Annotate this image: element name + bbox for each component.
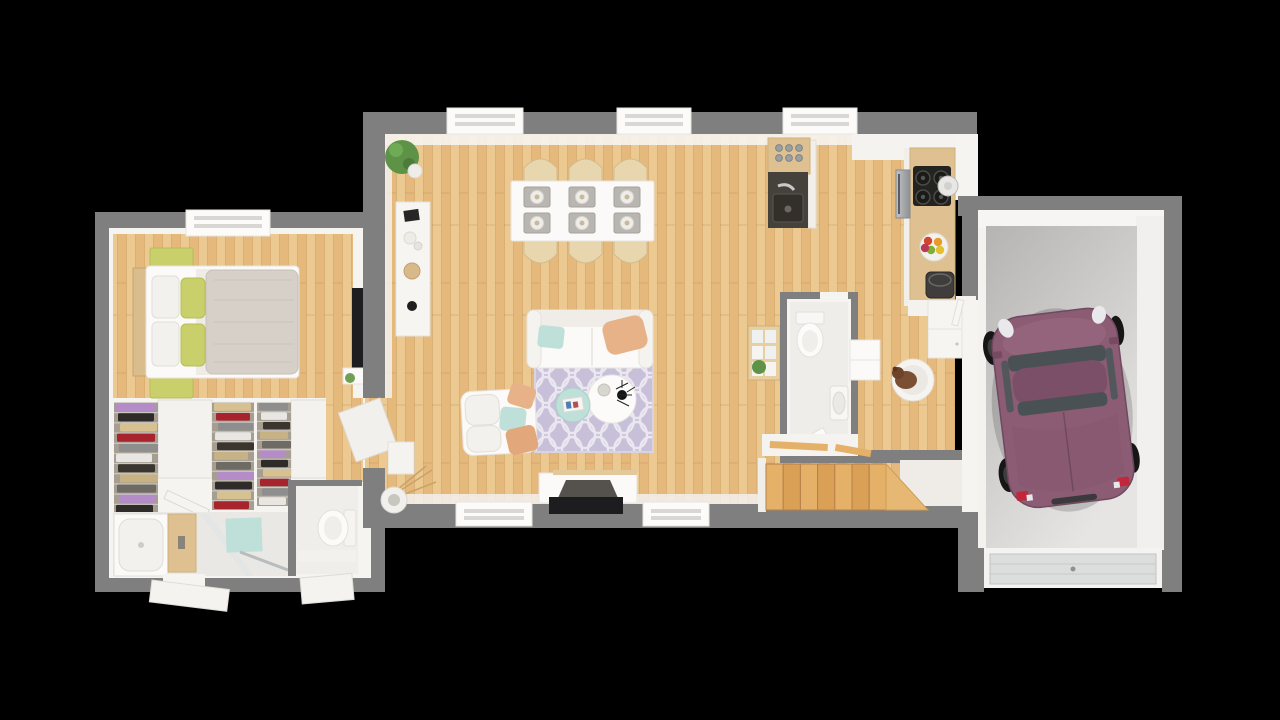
- food: [535, 221, 540, 226]
- folded-clothes: [263, 469, 291, 476]
- half-wall-stub: [388, 442, 414, 474]
- window-slit: [455, 114, 515, 118]
- folded-clothes: [259, 498, 286, 505]
- garage: [958, 196, 1182, 592]
- wc-toilet: [796, 312, 824, 357]
- coffee-table: [588, 375, 636, 423]
- living-window: [447, 108, 523, 134]
- wardrobe-shelf-line: [114, 483, 158, 484]
- folded-clothes: [262, 488, 288, 495]
- shelf-plant: [752, 360, 766, 374]
- living-window: [643, 502, 709, 526]
- food: [535, 195, 540, 200]
- stair-tread: [800, 464, 817, 510]
- fruit: [934, 238, 942, 246]
- glass-cup: [776, 155, 783, 162]
- folded-clothes: [261, 412, 287, 419]
- fruit: [921, 244, 929, 252]
- vanity-handle: [178, 536, 185, 549]
- folded-clothes: [259, 403, 288, 410]
- garage-door-handle: [1071, 567, 1076, 572]
- food: [580, 221, 585, 226]
- left-wall-trim: [385, 145, 392, 398]
- wardrobe-shelf-line: [114, 463, 158, 464]
- wc-small: [288, 480, 362, 576]
- wardrobe-shelf-line: [257, 430, 291, 431]
- bed-headboard: [133, 268, 147, 376]
- wardrobe-shelf-line: [114, 412, 158, 413]
- living-left-wall-upper: [363, 112, 385, 398]
- stair-tread: [766, 464, 783, 510]
- wardrobe-shelf-line: [212, 431, 254, 432]
- window-slit: [464, 509, 524, 513]
- wc-small-toilet: [318, 510, 356, 546]
- burner-center: [921, 195, 925, 199]
- mint-bath-mat: [225, 517, 262, 552]
- wardrobe-shelf-line: [257, 478, 291, 479]
- folded-clothes: [214, 501, 249, 509]
- wardrobe-shelf-line: [257, 402, 291, 403]
- folded-clothes: [262, 441, 291, 448]
- folded-clothes: [118, 413, 154, 421]
- folded-clothes: [217, 491, 251, 499]
- wc-washbasin: [830, 386, 848, 420]
- folded-clothes: [214, 403, 251, 411]
- window-slit: [455, 122, 515, 126]
- stair-tread: [783, 464, 800, 510]
- bedroom-plant-shelf: [343, 368, 364, 384]
- glass-cup: [796, 145, 803, 152]
- folded-clothes: [216, 413, 250, 421]
- wardrobe-shelf-line: [257, 497, 291, 498]
- stair-tread: [869, 464, 886, 510]
- shelf-black-box: [403, 209, 419, 222]
- armchair: [460, 380, 541, 458]
- wardrobe-shelf-line: [212, 481, 254, 482]
- wardrobe-shelf-line: [212, 461, 254, 462]
- folded-clothes: [218, 423, 253, 431]
- wardrobe-shelf-line: [212, 451, 254, 452]
- wardrobe-panel-1: [158, 400, 212, 478]
- folded-clothes: [116, 454, 152, 462]
- folded-clothes: [215, 432, 251, 440]
- garage-right-wall: [1162, 196, 1182, 592]
- pillow-white-top: [152, 276, 179, 318]
- living-window: [456, 502, 532, 526]
- wardrobe-shelf-line: [212, 490, 254, 491]
- fruit-bowl: [920, 233, 948, 261]
- kitchen-island: [768, 138, 816, 228]
- wardrobe-shelf-line: [257, 411, 291, 412]
- folded-clothes: [116, 505, 153, 513]
- wardrobe-shelf-line: [212, 441, 254, 442]
- shelf-black-decor: [407, 301, 417, 311]
- folded-clothes: [117, 434, 155, 442]
- bathtub: [114, 514, 168, 576]
- car-mirror-left: [993, 351, 1003, 359]
- folded-clothes: [259, 450, 285, 457]
- folded-clothes: [218, 472, 254, 480]
- living-block: [338, 108, 983, 528]
- car-mirror-right: [1109, 337, 1119, 345]
- wardrobe-shelf-line: [212, 471, 254, 472]
- window-slit: [651, 516, 701, 520]
- wardrobe-shelf-line: [114, 504, 158, 505]
- wc-main: [780, 292, 858, 458]
- living-window: [617, 108, 691, 134]
- window-slit: [625, 122, 683, 126]
- window-slit: [791, 122, 849, 126]
- pillow-white-bottom: [152, 322, 179, 366]
- folded-clothes: [217, 442, 254, 450]
- waste-bin: [926, 272, 954, 298]
- utility-table: [850, 340, 880, 380]
- wardrobe-shelf-line: [212, 412, 254, 413]
- wardrobe-shelf-line: [257, 468, 291, 469]
- wc-door-gap: [820, 292, 848, 300]
- wardrobe-shelf-line: [212, 422, 254, 423]
- window-slit: [625, 114, 683, 118]
- food: [625, 195, 630, 200]
- wardrobe-shelf-line: [257, 440, 291, 441]
- pillow-green-top: [181, 278, 205, 318]
- folded-clothes: [117, 484, 156, 492]
- folded-clothes: [119, 495, 155, 503]
- fruit: [936, 246, 944, 254]
- divider-wall-white: [962, 300, 978, 516]
- folded-clothes: [116, 403, 155, 411]
- stair-treads: [766, 464, 886, 510]
- stair-tread: [852, 464, 869, 510]
- bedroom-window: [186, 210, 270, 236]
- food: [580, 195, 585, 200]
- wardrobe-shelf-line: [114, 494, 158, 495]
- sofa-mint-pillow: [537, 325, 565, 350]
- floor-plan-render: [0, 0, 1280, 720]
- folded-clothes: [215, 482, 252, 490]
- folded-clothes: [260, 479, 289, 486]
- double-bed: [133, 266, 299, 378]
- wardrobe-shelf-line: [257, 487, 291, 488]
- glass-cup: [796, 155, 803, 162]
- folded-clothes: [260, 431, 288, 438]
- folded-clothes: [118, 464, 155, 472]
- entry-door-leaf-2: [300, 573, 354, 603]
- garage-right-trim: [1136, 216, 1164, 550]
- glass-cup: [786, 145, 793, 152]
- stair-tread: [835, 464, 852, 510]
- folded-clothes: [216, 462, 251, 470]
- folded-clothes: [261, 460, 288, 467]
- sofa: [527, 310, 653, 368]
- folded-clothes: [214, 452, 248, 460]
- food: [625, 221, 630, 226]
- wardrobe-shelf-line: [212, 402, 254, 403]
- folded-clothes: [119, 444, 158, 452]
- folded-clothes: [263, 422, 290, 429]
- folded-clothes: [120, 474, 158, 482]
- glass-cup: [776, 145, 783, 152]
- wall-shelf: [396, 202, 430, 336]
- window-slit: [464, 516, 524, 520]
- garage-door: [984, 548, 1162, 588]
- car: [979, 300, 1145, 520]
- burner-center: [939, 195, 943, 199]
- lowboard-wood-top: [553, 470, 637, 475]
- dining-set: [511, 159, 654, 263]
- bedroom-suite: [95, 210, 385, 611]
- wardrobe-shelf-line: [114, 433, 158, 434]
- window-slit: [791, 114, 849, 118]
- wardrobe-shelf-line: [114, 443, 158, 444]
- living-top-windows: [447, 108, 857, 134]
- side-table: [556, 388, 590, 422]
- stair-tread: [818, 464, 835, 510]
- bathroom: [113, 512, 289, 576]
- wardrobe-shelf-line: [114, 453, 158, 454]
- folded-clothes: [120, 423, 157, 431]
- wardrobe-shelf-line: [114, 402, 158, 403]
- wardrobe-shelf-line: [114, 473, 158, 474]
- tv-back: [558, 480, 618, 498]
- wardrobe-shelf-line: [257, 421, 291, 422]
- floor-plan-canvas: [0, 0, 1280, 720]
- dog-bed: [892, 359, 934, 401]
- window-slit: [651, 509, 701, 513]
- wardrobe-shelf-line: [114, 422, 158, 423]
- garage-left-trim: [978, 228, 987, 548]
- living-window: [783, 108, 857, 134]
- glass-cup: [786, 155, 793, 162]
- pillow-green-bottom: [181, 324, 205, 366]
- wardrobe-shelf-line: [212, 500, 254, 501]
- living-tv: [549, 497, 623, 514]
- tv-area: [539, 470, 637, 514]
- burner-center: [921, 176, 925, 180]
- wardrobe-shelf-line: [257, 459, 291, 460]
- wc-ledge: [298, 550, 356, 562]
- wardrobe-shelf-line: [257, 449, 291, 450]
- cube-shelf: [748, 326, 780, 380]
